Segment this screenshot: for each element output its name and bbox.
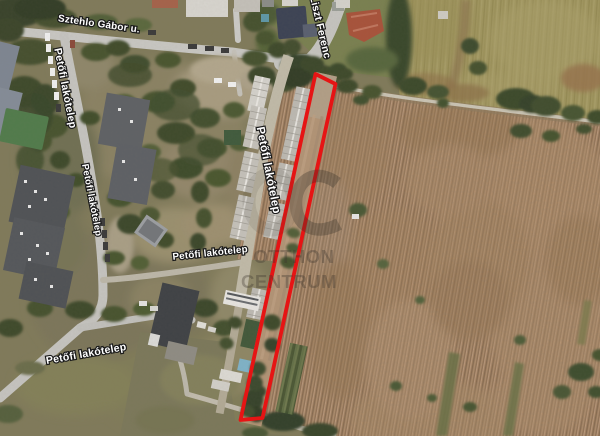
svg-text:CENTRUM: CENTRUM xyxy=(241,271,337,292)
svg-text:OTTHON: OTTHON xyxy=(253,246,334,267)
